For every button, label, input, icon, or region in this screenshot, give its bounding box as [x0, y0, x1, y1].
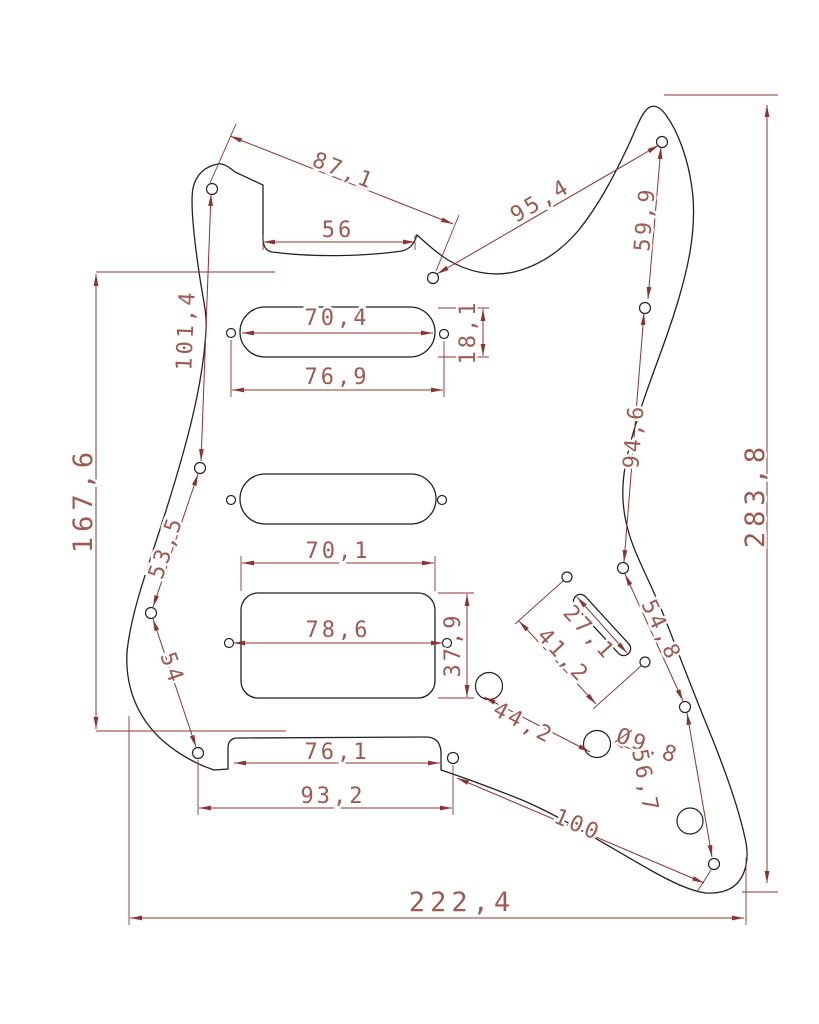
screw-hole-left-lower [146, 608, 157, 619]
dim-label-167-6: 167,6 [68, 447, 99, 553]
bridge-humbucker-opening [241, 593, 435, 698]
pot-hole-volume [476, 673, 503, 700]
dim-label-54: 54 [154, 649, 188, 688]
screw-hole-right-upper [640, 303, 651, 314]
screw-hole-top-center [428, 273, 439, 284]
drawing-canvas: 87,1 56 95,4 59,9 101,4 167,6 53,5 54 70… [0, 0, 819, 1024]
dim-label-93-2: 93,2 [301, 784, 366, 809]
dim-label-222-4: 222,4 [409, 887, 515, 918]
dim-line-101-4 [201, 194, 211, 461]
screw-hole-left-waist [195, 463, 206, 474]
dim-label-18-1: 18,1 [456, 300, 481, 365]
middle-pickup-screw-left [227, 496, 236, 505]
dim-label-283-8: 283,8 [740, 442, 771, 548]
dimension-labels: 87,1 56 95,4 59,9 101,4 167,6 53,5 54 70… [68, 148, 771, 918]
pickguard-technical-drawing: 87,1 56 95,4 59,9 101,4 167,6 53,5 54 70… [0, 0, 819, 1024]
switch-screw-lower [640, 657, 650, 667]
middle-pickup-screw-right [438, 496, 447, 505]
dim-label-101-4: 101,4 [172, 289, 201, 371]
dim-label-56: 56 [322, 218, 355, 243]
dim-label-54-8: 54,8 [636, 596, 686, 665]
dim-label-37-9: 37,9 [441, 613, 466, 678]
dim-label-100: 100 [550, 804, 605, 846]
dim-label-59-9: 59,9 [630, 186, 661, 253]
dim-label-70-1: 70,1 [306, 539, 371, 564]
dim-line-56-7 [687, 713, 712, 857]
dim-label-94-6: 94,6 [619, 403, 650, 470]
switch-screw-upper [562, 572, 572, 582]
pot-hole-tone2 [677, 808, 703, 834]
dim-label-95-4: 95,4 [506, 174, 575, 228]
humbucker-screw-left [225, 639, 234, 648]
dim-label-44-2: 44,2 [489, 697, 558, 749]
dim-label-53-5: 53,5 [144, 513, 189, 583]
pot-hole-tone1 [584, 731, 611, 758]
dim-label-76-9: 76,9 [305, 365, 370, 390]
neck-pickup-screw-left [227, 329, 236, 338]
dimension-lines [96, 105, 767, 918]
screw-hole-top-left [207, 184, 218, 195]
screw-hole-right-waist [618, 563, 629, 574]
extension-lines [96, 95, 778, 925]
screw-hole-right-lower [680, 702, 691, 713]
dim-label-70-4: 70,4 [305, 306, 370, 331]
dim-label-78-6: 78,6 [306, 618, 371, 643]
screw-hole-bottom-left [193, 748, 204, 759]
dim-label-76-1: 76,1 [305, 740, 370, 765]
dim-label-87-1: 87,1 [309, 148, 379, 195]
screw-hole-bottom-right [709, 859, 720, 870]
screw-hole-bridge-right [448, 753, 459, 764]
neck-pickup-screw-right [440, 330, 449, 339]
middle-pickup-opening [240, 474, 436, 524]
